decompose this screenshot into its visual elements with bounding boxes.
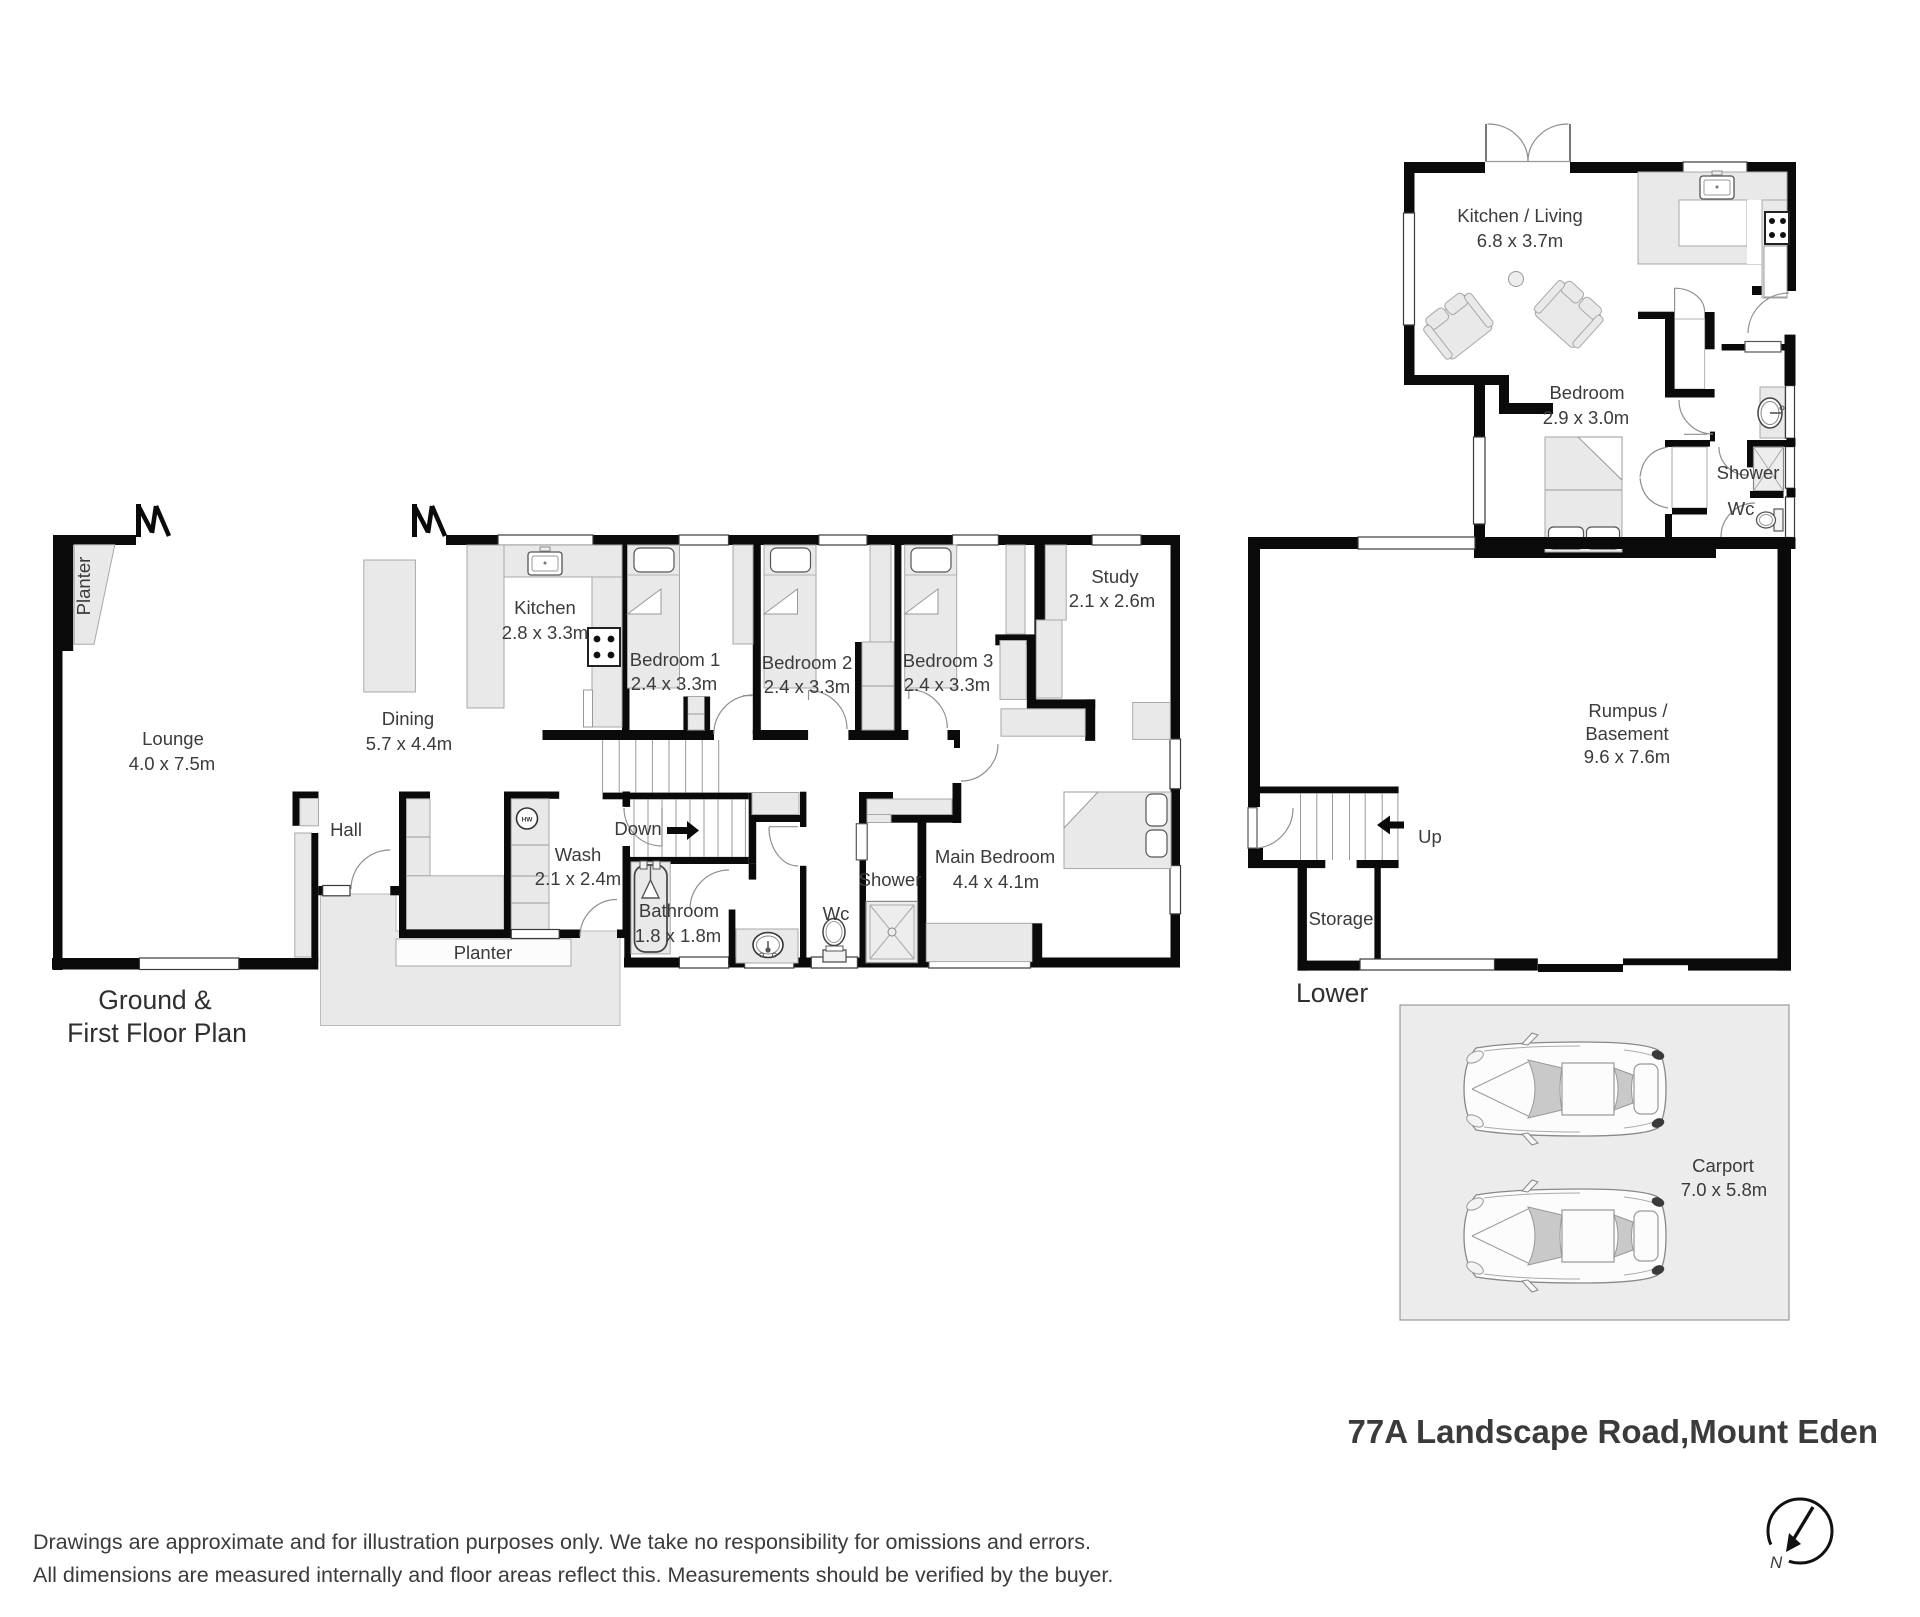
svg-text:Planter: Planter: [73, 557, 94, 616]
svg-text:2.9 x 3.0m: 2.9 x 3.0m: [1543, 407, 1629, 428]
svg-text:Planter: Planter: [454, 942, 513, 963]
svg-text:Bathroom: Bathroom: [639, 900, 719, 921]
svg-text:Hall: Hall: [330, 819, 362, 840]
svg-text:1.8 x 1.8m: 1.8 x 1.8m: [635, 925, 721, 946]
svg-text:Bedroom 2: Bedroom 2: [762, 652, 853, 673]
svg-text:Bedroom: Bedroom: [1549, 382, 1624, 403]
svg-text:Lounge: Lounge: [142, 728, 204, 749]
svg-text:Carport: Carport: [1692, 1155, 1754, 1176]
svg-text:2.4 x 3.3m: 2.4 x 3.3m: [764, 676, 850, 697]
svg-text:Kitchen / Living: Kitchen / Living: [1457, 205, 1582, 226]
svg-text:9.6 x 7.6m: 9.6 x 7.6m: [1584, 746, 1670, 767]
svg-text:Rumpus /: Rumpus /: [1588, 700, 1668, 721]
svg-text:Dining: Dining: [382, 708, 434, 729]
svg-text:Wash: Wash: [555, 844, 602, 865]
svg-text:Shower: Shower: [859, 869, 922, 890]
svg-text:Study: Study: [1091, 566, 1139, 587]
svg-text:Wc: Wc: [1728, 498, 1755, 519]
svg-text:2.4 x 3.3m: 2.4 x 3.3m: [904, 674, 990, 695]
svg-text:Main Bedroom: Main Bedroom: [935, 846, 1055, 867]
svg-text:Kitchen: Kitchen: [514, 597, 576, 618]
svg-text:Ground &: Ground &: [98, 985, 212, 1015]
svg-text:Bedroom 1: Bedroom 1: [630, 649, 721, 670]
svg-text:77A Landscape Road,Mount Eden: 77A Landscape Road,Mount Eden: [1347, 1413, 1878, 1450]
svg-text:2.1 x 2.6m: 2.1 x 2.6m: [1069, 590, 1155, 611]
svg-text:Down: Down: [614, 818, 661, 839]
svg-text:2.8 x 3.3m: 2.8 x 3.3m: [502, 622, 588, 643]
svg-text:HW: HW: [522, 817, 534, 824]
svg-text:4.4 x 4.1m: 4.4 x 4.1m: [953, 871, 1039, 892]
svg-text:Up: Up: [1418, 826, 1442, 847]
svg-text:Drawings are approximate and f: Drawings are approximate and for illustr…: [33, 1530, 1091, 1554]
svg-text:First Floor Plan: First Floor Plan: [67, 1018, 247, 1048]
svg-text:N: N: [1770, 1553, 1783, 1572]
svg-text:2.1 x 2.4m: 2.1 x 2.4m: [535, 868, 621, 889]
svg-text:Basement: Basement: [1585, 723, 1668, 744]
svg-text:2.4 x 3.3m: 2.4 x 3.3m: [631, 673, 717, 694]
svg-text:All dimensions are measured in: All dimensions are measured internally a…: [33, 1563, 1113, 1587]
svg-text:4.0 x 7.5m: 4.0 x 7.5m: [129, 753, 215, 774]
svg-text:Storage: Storage: [1309, 908, 1374, 929]
svg-text:6.8 x 3.7m: 6.8 x 3.7m: [1477, 230, 1563, 251]
svg-text:Lower: Lower: [1296, 978, 1368, 1008]
svg-text:Shower: Shower: [1717, 462, 1780, 483]
svg-text:Bedroom 3: Bedroom 3: [903, 650, 994, 671]
svg-text:Wc: Wc: [823, 903, 850, 924]
svg-text:7.0 x 5.8m: 7.0 x 5.8m: [1681, 1179, 1767, 1200]
svg-text:5.7 x 4.4m: 5.7 x 4.4m: [366, 733, 452, 754]
